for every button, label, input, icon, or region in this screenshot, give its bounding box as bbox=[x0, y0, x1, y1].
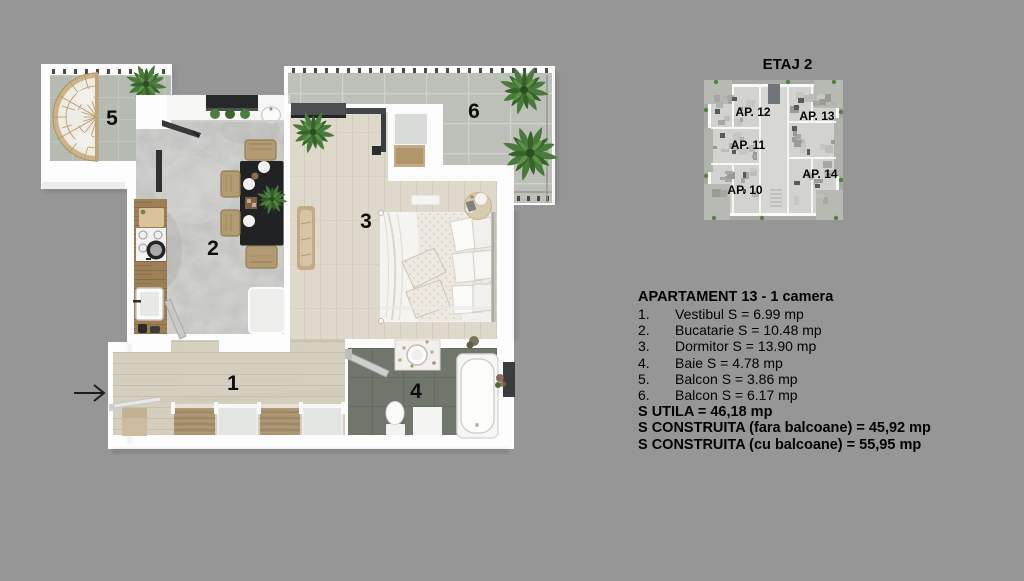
svg-text:AP. 12: AP. 12 bbox=[735, 105, 770, 119]
svg-text:AP. 10: AP. 10 bbox=[727, 183, 762, 197]
svg-text:2: 2 bbox=[207, 237, 219, 260]
svg-text:AP. 13: AP. 13 bbox=[799, 109, 834, 123]
svg-text:1: 1 bbox=[227, 372, 239, 395]
svg-text:AP. 11: AP. 11 bbox=[731, 138, 766, 152]
svg-text:3: 3 bbox=[360, 210, 372, 233]
svg-text:6: 6 bbox=[468, 100, 480, 123]
svg-text:4: 4 bbox=[410, 380, 422, 403]
svg-text:AP. 14: AP. 14 bbox=[802, 167, 837, 181]
svg-text:5: 5 bbox=[106, 107, 118, 130]
